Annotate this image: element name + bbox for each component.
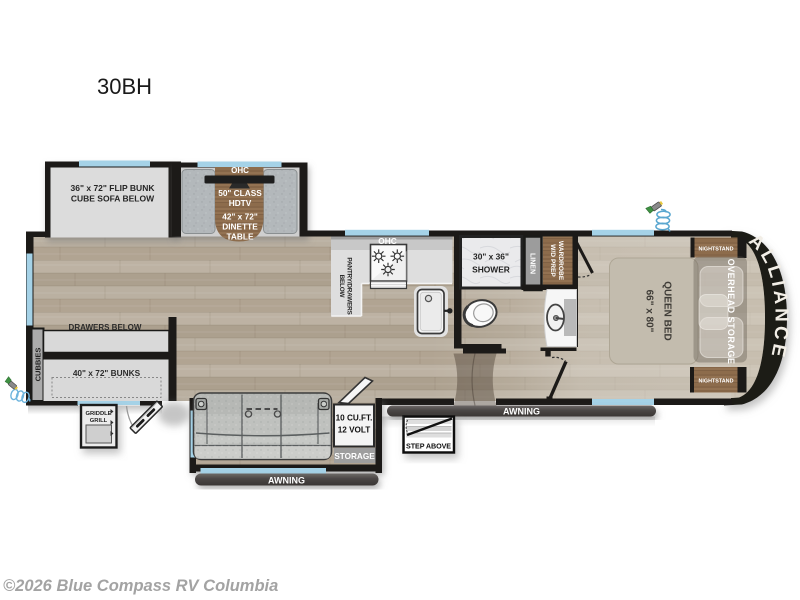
svg-text:BELOW: BELOW (338, 275, 345, 299)
svg-text:10 CU.FT.: 10 CU.FT. (336, 414, 373, 423)
svg-text:50" CLASS: 50" CLASS (218, 188, 262, 198)
svg-text:STORAGE: STORAGE (334, 452, 375, 461)
svg-text:AWNING: AWNING (268, 475, 305, 485)
svg-text:DINETTE: DINETTE (222, 222, 258, 232)
svg-text:©2026 Blue Compass RV Columbia: ©2026 Blue Compass RV Columbia (3, 577, 278, 595)
svg-text:TABLE: TABLE (226, 232, 254, 242)
svg-text:OHC: OHC (378, 236, 396, 246)
svg-text:CUBE SOFA BELOW: CUBE SOFA BELOW (71, 194, 155, 204)
svg-text:42" x 72": 42" x 72" (222, 212, 258, 222)
svg-text:WARDROBE: WARDROBE (557, 241, 564, 281)
svg-text:AWNING: AWNING (503, 406, 540, 416)
svg-text:NIGHTSTAND: NIGHTSTAND (699, 247, 734, 253)
svg-text:OVERHEAD STORAGE: OVERHEAD STORAGE (726, 259, 736, 365)
svg-text:CUBBIES: CUBBIES (34, 348, 43, 382)
svg-text:NIGHTSTAND: NIGHTSTAND (699, 379, 734, 385)
svg-text:PANTRY/DRAWERS: PANTRY/DRAWERS (346, 257, 353, 315)
svg-text:STEP ABOVE: STEP ABOVE (406, 442, 451, 451)
svg-text:LINEN: LINEN (529, 253, 536, 274)
svg-text:SHOWER: SHOWER (472, 265, 510, 275)
svg-text:GRILL: GRILL (90, 418, 108, 424)
svg-text:30BH: 30BH (97, 74, 152, 99)
svg-text:OHC: OHC (231, 166, 249, 175)
svg-text:DRAWERS BELOW: DRAWERS BELOW (69, 323, 142, 332)
svg-text:12 VOLT: 12 VOLT (338, 426, 371, 435)
svg-text:36" x 72" FLIP BUNK: 36" x 72" FLIP BUNK (71, 183, 156, 193)
svg-text:66" x 80": 66" x 80" (644, 290, 655, 333)
svg-text:QUEEN BED: QUEEN BED (662, 281, 673, 340)
svg-text:30" x 36": 30" x 36" (473, 252, 509, 262)
svg-text:W/D PREP: W/D PREP (549, 244, 556, 277)
svg-text:GRIDDLE: GRIDDLE (85, 411, 111, 417)
svg-text:40" x 72" BUNKS: 40" x 72" BUNKS (73, 368, 141, 378)
svg-text:HDTV: HDTV (229, 198, 252, 208)
